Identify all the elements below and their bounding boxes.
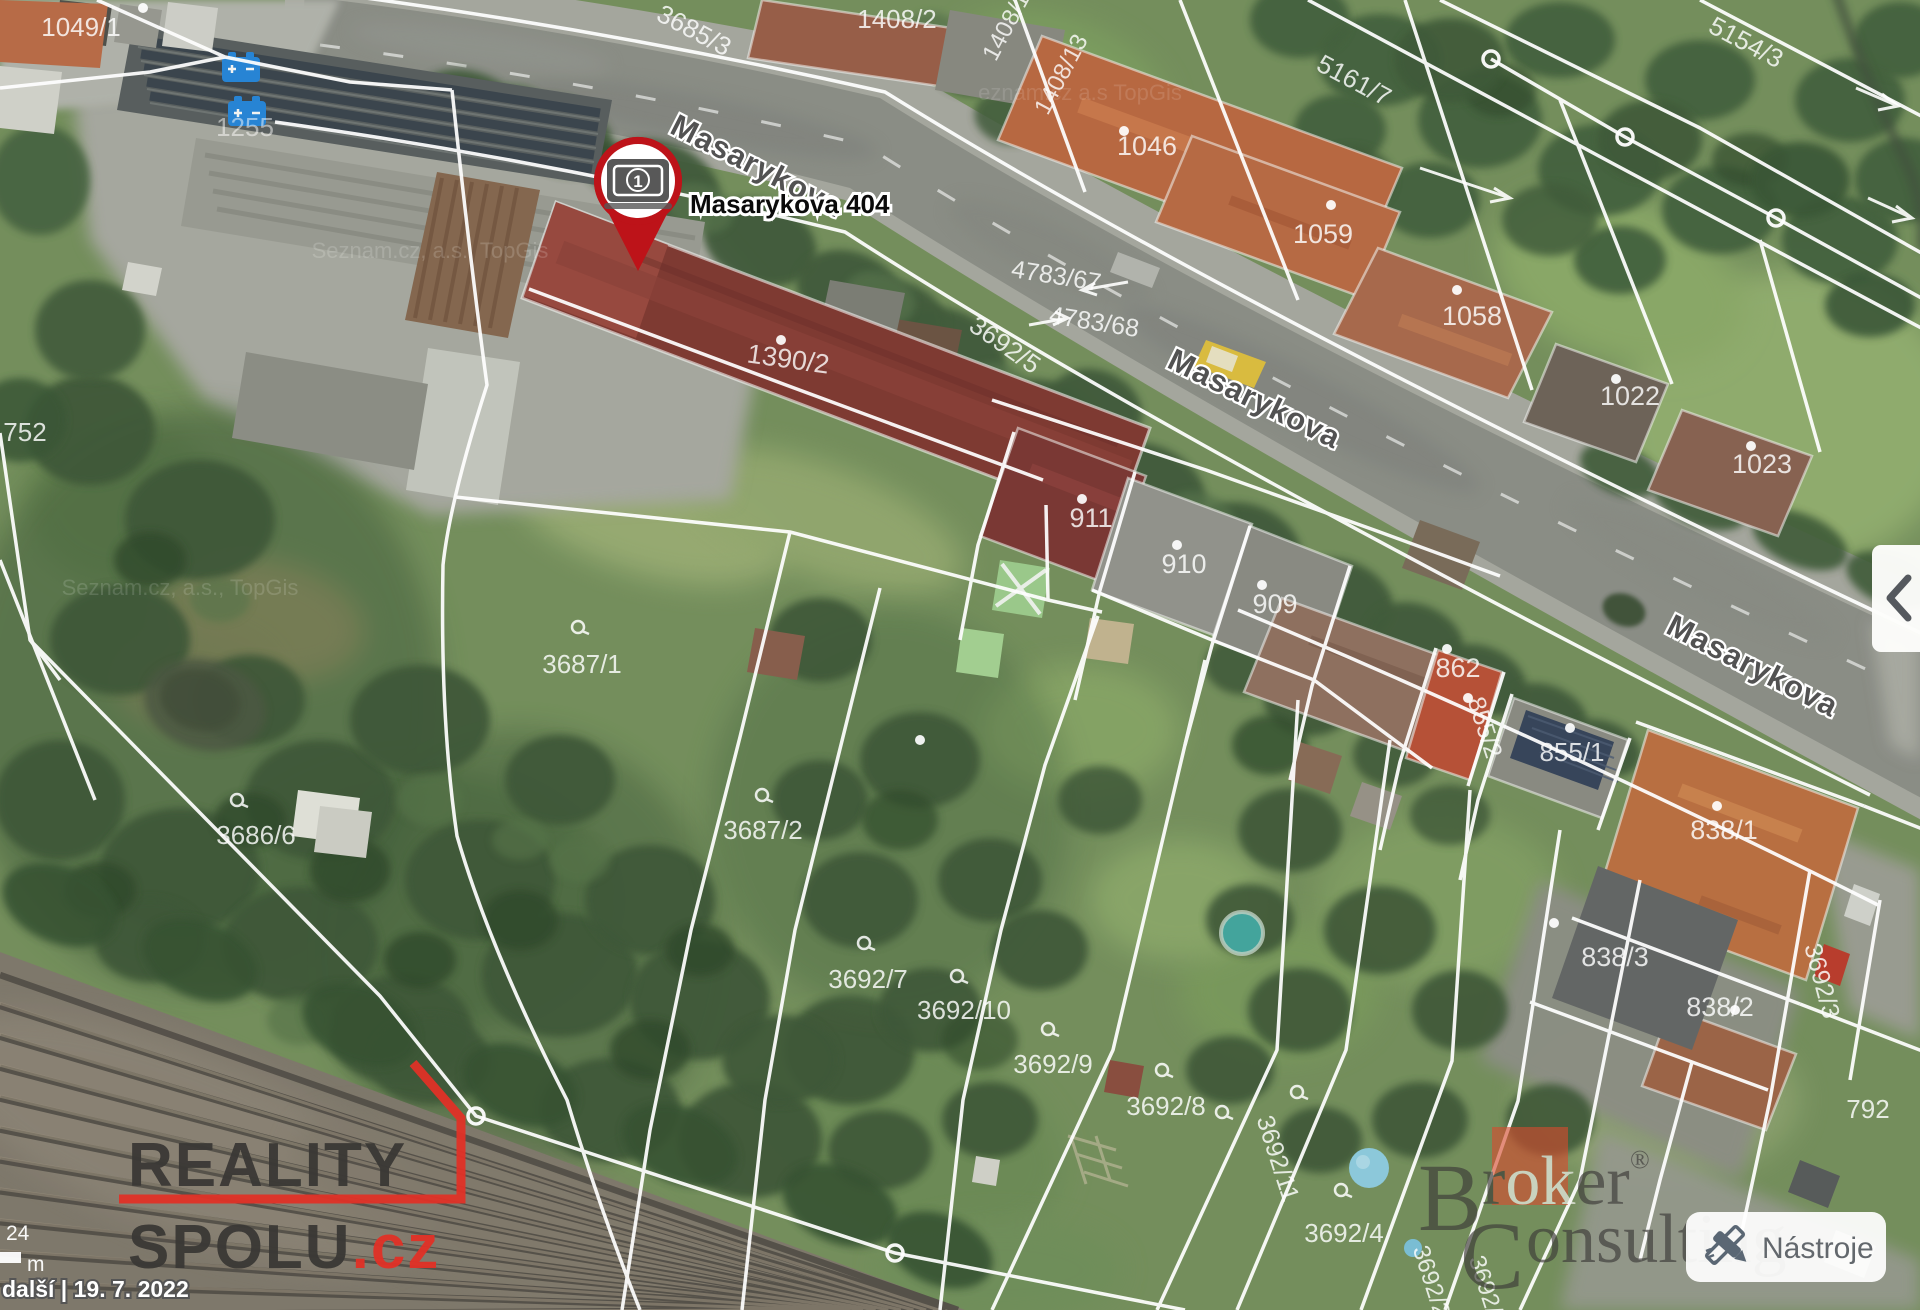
svg-text:1408/2: 1408/2 bbox=[857, 4, 937, 34]
svg-text:838/3: 838/3 bbox=[1581, 942, 1649, 972]
svg-text:838/1: 838/1 bbox=[1690, 815, 1758, 845]
svg-text:3687/2: 3687/2 bbox=[723, 815, 803, 845]
svg-text:Seznam.cz, a.s., TopGis: Seznam.cz, a.s., TopGis bbox=[62, 575, 299, 600]
svg-text:3692/8: 3692/8 bbox=[1126, 1091, 1206, 1121]
svg-text:m: m bbox=[27, 1253, 45, 1276]
svg-text:Masarykova 404: Masarykova 404 bbox=[690, 189, 890, 219]
svg-text:REALITY: REALITY bbox=[128, 1131, 407, 1200]
svg-text:další | 19. 7. 2022: další | 19. 7. 2022 bbox=[2, 1276, 189, 1302]
svg-text:3686/6: 3686/6 bbox=[216, 820, 296, 850]
svg-text:3692/10: 3692/10 bbox=[917, 995, 1011, 1025]
svg-text:752: 752 bbox=[3, 417, 46, 447]
svg-text:SPOLU.cz: SPOLU.cz bbox=[128, 1213, 440, 1282]
svg-text:Seznam.cz, a.s., TopGis: Seznam.cz, a.s., TopGis bbox=[312, 238, 549, 263]
svg-text:862: 862 bbox=[1435, 653, 1480, 683]
svg-text:3692/9: 3692/9 bbox=[1013, 1049, 1093, 1079]
svg-text:1255: 1255 bbox=[216, 112, 274, 142]
svg-text:838/2: 838/2 bbox=[1686, 992, 1754, 1022]
svg-text:909: 909 bbox=[1252, 589, 1297, 619]
svg-text:3692/7: 3692/7 bbox=[828, 964, 908, 994]
svg-text:24: 24 bbox=[6, 1222, 30, 1245]
svg-text:1: 1 bbox=[633, 172, 642, 191]
svg-text:Nástroje: Nástroje bbox=[1762, 1232, 1874, 1265]
svg-text:1046: 1046 bbox=[1117, 131, 1177, 161]
svg-text:1058: 1058 bbox=[1442, 301, 1502, 331]
svg-text:910: 910 bbox=[1161, 549, 1206, 579]
svg-text:3687/1: 3687/1 bbox=[542, 649, 622, 679]
svg-text:911: 911 bbox=[1069, 503, 1112, 533]
svg-text:®: ® bbox=[1630, 1145, 1650, 1174]
svg-text:792: 792 bbox=[1846, 1094, 1889, 1124]
svg-text:1023: 1023 bbox=[1732, 449, 1792, 479]
svg-text:1049/1: 1049/1 bbox=[41, 12, 121, 42]
svg-text:1059: 1059 bbox=[1293, 219, 1353, 249]
svg-text:855/1: 855/1 bbox=[1539, 737, 1604, 767]
svg-text:1022: 1022 bbox=[1600, 381, 1660, 411]
svg-text:3692/4: 3692/4 bbox=[1304, 1218, 1384, 1248]
svg-text:eznam.cz a.s TopGis: eznam.cz a.s TopGis bbox=[978, 80, 1182, 105]
svg-text:C: C bbox=[1460, 1202, 1524, 1309]
